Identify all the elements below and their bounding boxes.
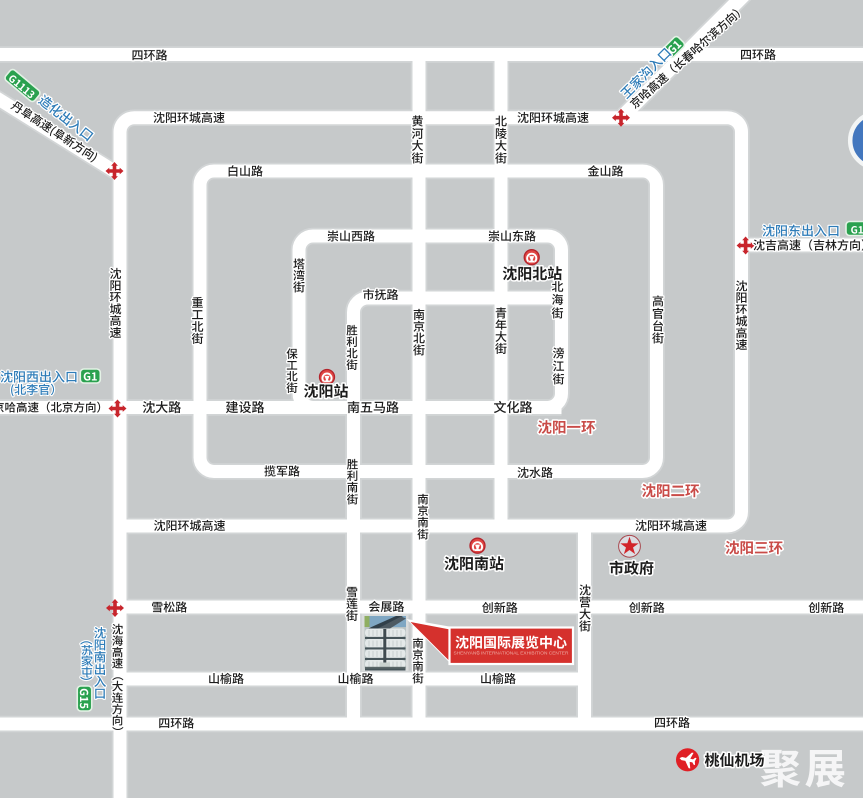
svg-text:街: 街 [191,330,203,347]
svg-text:街: 街 [346,357,358,373]
svg-text:G1212: G1212 [851,222,863,237]
svg-text:文化路: 文化路 [493,397,532,416]
svg-text:沈阳环城高速: 沈阳环城高速 [153,517,225,534]
svg-text:沈阳南站: 沈阳南站 [444,553,504,574]
svg-text:沈水路: 沈水路 [517,464,553,481]
svg-text:(北李官）: (北李官） [10,381,62,398]
svg-text:街: 街 [417,526,429,542]
svg-text:G1: G1 [83,369,97,385]
svg-text:SHENYANG INTERNATIONAL EXHIBIT: SHENYANG INTERNATIONAL EXHIBITION CENTER [454,649,569,656]
svg-text:街: 街 [412,670,424,686]
svg-text:白山路: 白山路 [227,163,263,180]
svg-text:雪松路: 雪松路 [151,599,187,616]
svg-text:桃仙机场: 桃仙机场 [704,749,764,770]
svg-text:崇山东路: 崇山东路 [488,228,536,245]
svg-text:）: ） [78,676,97,689]
svg-text:沈阳环城高速: 沈阳环城高速 [517,109,589,126]
svg-text:街: 街 [552,371,564,388]
svg-text:会展路: 会展路 [368,598,404,615]
svg-text:四环路: 四环路 [654,714,690,731]
svg-text:）: ） [110,726,126,738]
svg-text:建设路: 建设路 [225,397,264,416]
svg-text:创新路: 创新路 [482,599,518,616]
svg-text:创新路: 创新路 [629,599,665,616]
svg-text:金山路: 金山路 [587,163,623,180]
svg-text:G15: G15 [76,688,92,709]
svg-text:街: 街 [495,149,507,166]
svg-text:沈阳一环: 沈阳一环 [538,417,596,438]
svg-text:四环路: 四环路 [740,46,776,63]
svg-text:街: 街 [347,491,359,507]
svg-text:聚展: 聚展 [759,736,849,796]
svg-text:南五马路: 南五马路 [347,397,399,416]
svg-text:沈大路: 沈大路 [142,397,181,416]
svg-text:街: 街 [551,304,563,321]
svg-text:速: 速 [109,324,121,341]
svg-text:沈阳环城高速: 沈阳环城高速 [635,517,707,534]
svg-text:京哈高速（北京方向）: 京哈高速（北京方向） [0,400,108,416]
svg-text:街: 街 [286,380,298,396]
svg-text:沈阳东出入口: 沈阳东出入口 [762,221,840,240]
svg-text:四环路: 四环路 [131,47,167,64]
svg-text:市政府: 市政府 [609,558,654,579]
svg-text:沈阳二环: 沈阳二环 [642,480,700,501]
svg-text:山榆路: 山榆路 [480,670,516,687]
svg-text:市抚路: 市抚路 [362,286,398,303]
svg-text:街: 街 [413,341,425,358]
svg-text:崇山西路: 崇山西路 [327,228,375,245]
svg-text:街: 街 [652,330,664,347]
svg-text:揽军路: 揽军路 [264,463,300,480]
svg-text:沈阳环城高速: 沈阳环城高速 [153,109,225,126]
svg-text:街: 街 [293,279,305,296]
svg-text:速: 速 [735,336,747,353]
svg-text:山榆路: 山榆路 [208,670,244,687]
svg-text:沈阳三环: 沈阳三环 [725,537,783,558]
svg-text:创新路: 创新路 [808,599,844,616]
svg-text:街: 街 [579,618,591,635]
svg-text:山榆路: 山榆路 [337,670,373,687]
svg-text:街: 街 [411,149,423,166]
svg-text:沈阳站: 沈阳站 [303,381,348,402]
svg-text:四环路: 四环路 [158,715,194,732]
svg-text:街: 街 [495,340,507,357]
svg-text:街: 街 [346,607,358,624]
